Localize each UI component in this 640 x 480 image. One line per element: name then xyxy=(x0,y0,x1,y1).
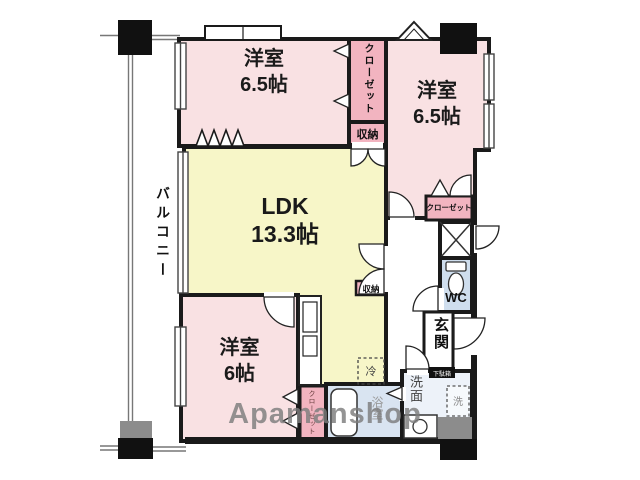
pillar-top-right xyxy=(440,23,477,54)
front-door xyxy=(454,318,485,349)
label-storage-top: 収納 xyxy=(349,126,386,142)
kitchen-stove-icon xyxy=(303,336,317,356)
pillar-bottom-left xyxy=(118,438,153,459)
label-bedroom-top-right: 洋室 6.5帖 xyxy=(386,78,488,130)
floorplan: 洋室 6.5帖 洋室 6.5帖 LDK 13.3帖 洋室 6帖 バルコニー クロ… xyxy=(0,0,640,480)
label-bedroom-bottom-left: 洋室 6帖 xyxy=(181,335,298,387)
label-shoe-cabinet: 下駄箱 xyxy=(429,369,455,378)
pillar-bottom-right xyxy=(440,439,477,460)
label-closet-top: クローゼット xyxy=(360,43,375,115)
label-washer-space: 洗 xyxy=(447,393,469,408)
kitchen-sink-icon xyxy=(303,302,317,332)
balcony-railing xyxy=(100,36,186,452)
label-closet-right: クローゼット xyxy=(426,202,472,213)
label-entrance: 玄関 xyxy=(430,317,451,351)
label-refrigerator-space: 冷 xyxy=(358,363,384,379)
wc-door xyxy=(413,286,438,311)
label-storage-mid: 収納 xyxy=(356,283,386,295)
pillar-top-left xyxy=(118,20,152,55)
shaft-exterior-door xyxy=(476,226,499,249)
corner-vent-icon xyxy=(397,22,431,40)
toilet-tank-icon xyxy=(446,262,466,271)
label-balcony: バルコニー xyxy=(153,186,173,281)
entry-tile xyxy=(438,417,472,439)
label-wc: WC xyxy=(440,290,472,305)
label-bedroom-top-left: 洋室 6.5帖 xyxy=(179,46,349,98)
watermark: Apamanshop xyxy=(222,398,428,431)
label-ldk: LDK 13.3帖 xyxy=(184,192,386,248)
